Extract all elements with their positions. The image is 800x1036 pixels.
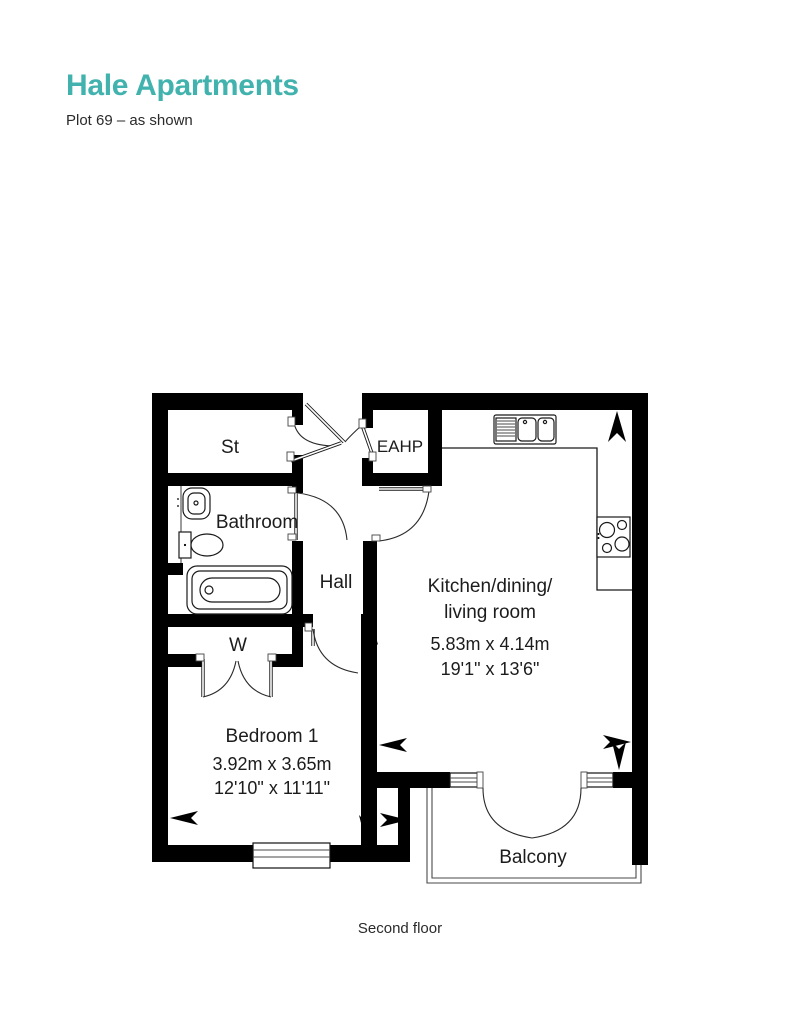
- wardrobe-label: W: [229, 635, 247, 656]
- north-arrow-icon: [608, 411, 626, 442]
- bedroom-window: [253, 843, 330, 868]
- bedroom-dims-metric: 3.92m x 3.65m: [212, 754, 331, 774]
- basin-icon: [177, 488, 210, 519]
- bathroom-label: Bathroom: [216, 512, 298, 533]
- hob-icon: [597, 517, 630, 557]
- hall-label: Hall: [320, 572, 353, 593]
- balcony-outline: [427, 788, 641, 883]
- kitchen-sink-icon: [494, 415, 556, 444]
- balcony-label: Balcony: [499, 847, 567, 868]
- storage-door: [291, 443, 341, 461]
- wardrobe-doors: [203, 659, 271, 697]
- bedroom-label: Bedroom 1: [226, 726, 319, 747]
- kitchen-dims-imperial: 19'1" x 13'6": [441, 659, 540, 679]
- balcony-doors: [477, 772, 587, 838]
- kitchen-label-line1: Kitchen/dining/: [428, 576, 553, 597]
- bathtub-icon: [187, 566, 292, 614]
- bedroom-dims-imperial: 12'10" x 11'11": [214, 778, 330, 798]
- floorplan-svg: St EAHP Bathroom Hall Kitchen/dining/ li…: [0, 0, 800, 1036]
- kitchen-label-line2: living room: [444, 602, 536, 623]
- eahp-label: EAHP: [377, 437, 423, 456]
- bathroom-door: [296, 493, 347, 540]
- floorplan-page: Hale Apartments Plot 69 – as shown: [0, 0, 800, 1036]
- floor-label: Second floor: [0, 920, 800, 937]
- storage-label: St: [221, 437, 240, 458]
- bedroom-door: [313, 629, 358, 673]
- toilet-icon: [179, 532, 223, 558]
- kitchen-dims-metric: 5.83m x 4.14m: [430, 634, 549, 654]
- kitchen-door: [379, 489, 429, 541]
